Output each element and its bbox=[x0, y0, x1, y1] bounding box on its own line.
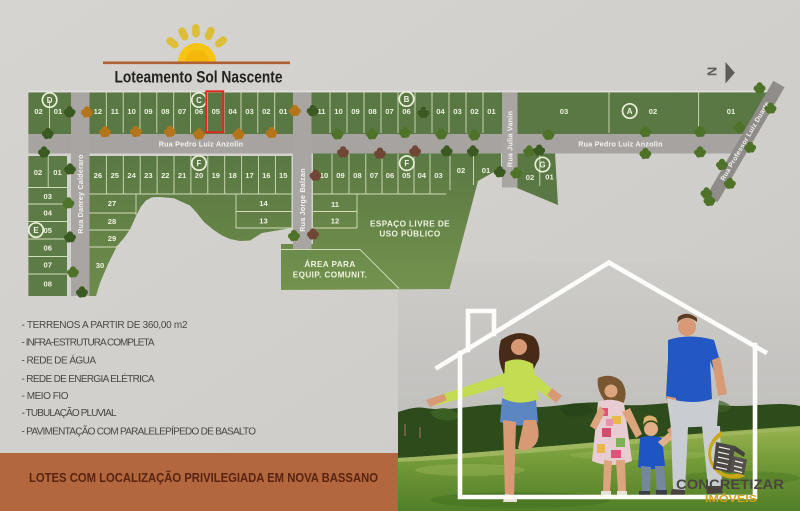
svg-text:08: 08 bbox=[368, 107, 376, 116]
svg-text:LOTES COM LOCALIZAÇÃO PRIVILEG: LOTES COM LOCALIZAÇÃO PRIVILEGIADA EM NO… bbox=[29, 470, 378, 485]
svg-text:26: 26 bbox=[94, 171, 102, 180]
svg-text:- REDE DE ENERGIA ELÉTRICA: - REDE DE ENERGIA ELÉTRICA bbox=[22, 372, 155, 385]
svg-text:12: 12 bbox=[331, 216, 339, 225]
svg-text:02: 02 bbox=[457, 166, 465, 175]
svg-text:02: 02 bbox=[34, 107, 42, 116]
svg-text:09: 09 bbox=[336, 171, 344, 180]
svg-text:05: 05 bbox=[43, 226, 52, 235]
svg-text:27: 27 bbox=[108, 199, 116, 208]
svg-text:- REDE DE ÁGUA: - REDE DE ÁGUA bbox=[22, 353, 97, 366]
svg-text:01: 01 bbox=[727, 107, 736, 116]
svg-text:04: 04 bbox=[228, 107, 237, 116]
svg-text:01: 01 bbox=[482, 166, 491, 175]
svg-text:08: 08 bbox=[161, 107, 169, 116]
svg-text:03: 03 bbox=[453, 107, 461, 116]
svg-text:03: 03 bbox=[560, 107, 568, 116]
svg-text:29: 29 bbox=[108, 234, 116, 243]
svg-text:16: 16 bbox=[262, 171, 270, 180]
svg-text:02: 02 bbox=[526, 173, 534, 182]
svg-text:Rua Julia Vanin: Rua Julia Vanin bbox=[505, 111, 514, 167]
svg-text:06: 06 bbox=[43, 243, 51, 252]
svg-text:03: 03 bbox=[434, 171, 442, 180]
svg-text:Loteamento Sol Nascente: Loteamento Sol Nascente bbox=[115, 69, 283, 87]
svg-text:02: 02 bbox=[34, 168, 42, 177]
svg-text:CONCRETIZAR: CONCRETIZAR bbox=[676, 477, 784, 492]
svg-text:- INFRA-ESTRUTURA COMPLETA: - INFRA-ESTRUTURA COMPLETA bbox=[22, 337, 155, 348]
svg-text:ÁREA PARA: ÁREA PARA bbox=[304, 259, 355, 269]
svg-text:- TERRENOS A PARTIR DE 360,00: - TERRENOS A PARTIR DE 360,00 m2 bbox=[22, 320, 188, 331]
svg-text:08: 08 bbox=[353, 171, 361, 180]
svg-text:14: 14 bbox=[259, 199, 268, 208]
svg-text:30: 30 bbox=[96, 261, 104, 270]
svg-text:01: 01 bbox=[487, 107, 496, 116]
svg-text:Rua Danrey Calderaro: Rua Danrey Calderaro bbox=[76, 154, 85, 234]
svg-text:17: 17 bbox=[245, 171, 253, 180]
svg-text:C: C bbox=[196, 96, 202, 105]
svg-text:01: 01 bbox=[279, 107, 288, 116]
svg-text:06: 06 bbox=[195, 107, 203, 116]
svg-text:EQUIP. COMUNIT.: EQUIP. COMUNIT. bbox=[293, 271, 368, 280]
svg-text:Rua Pedro Luiz Anzolin: Rua Pedro Luiz Anzolin bbox=[159, 139, 243, 148]
svg-text:01: 01 bbox=[53, 168, 62, 177]
svg-text:08: 08 bbox=[43, 280, 51, 289]
svg-text:G: G bbox=[539, 160, 545, 169]
svg-text:22: 22 bbox=[161, 171, 169, 180]
svg-text:12: 12 bbox=[94, 107, 102, 116]
svg-text:01: 01 bbox=[545, 173, 554, 182]
svg-text:19: 19 bbox=[212, 171, 220, 180]
svg-text:05: 05 bbox=[212, 107, 221, 116]
svg-text:18: 18 bbox=[228, 171, 236, 180]
svg-text:E: E bbox=[33, 226, 39, 235]
svg-text:03: 03 bbox=[245, 107, 253, 116]
svg-text:09: 09 bbox=[351, 107, 359, 116]
svg-text:Rua Pedro Luiz Anzolin: Rua Pedro Luiz Anzolin bbox=[578, 139, 662, 148]
svg-text:07: 07 bbox=[43, 261, 51, 270]
svg-text:02: 02 bbox=[470, 107, 478, 116]
svg-text:- TUBULAÇÃO PLUVIAL: - TUBULAÇÃO PLUVIAL bbox=[22, 406, 117, 419]
svg-text:11: 11 bbox=[317, 107, 326, 116]
svg-text:06: 06 bbox=[386, 171, 394, 180]
svg-text:- MEIO FIO: - MEIO FIO bbox=[22, 391, 69, 402]
svg-text:07: 07 bbox=[178, 107, 186, 116]
svg-text:20: 20 bbox=[195, 171, 203, 180]
svg-text:07: 07 bbox=[385, 107, 393, 116]
svg-text:28: 28 bbox=[108, 217, 116, 226]
svg-text:A: A bbox=[627, 107, 633, 116]
svg-text:04: 04 bbox=[418, 171, 427, 180]
svg-text:B: B bbox=[404, 95, 410, 104]
svg-text:24: 24 bbox=[127, 171, 136, 180]
svg-text:- PAVIMENTAÇÃO COM PARALELEPÍP: - PAVIMENTAÇÃO COM PARALELEPÍPEDO DE BAS… bbox=[22, 424, 257, 437]
svg-text:Rua Jorge Balzan: Rua Jorge Balzan bbox=[298, 168, 307, 232]
svg-text:F: F bbox=[197, 159, 202, 168]
svg-text:11: 11 bbox=[331, 200, 340, 209]
svg-text:02: 02 bbox=[649, 107, 657, 116]
svg-text:06: 06 bbox=[402, 107, 410, 116]
svg-text:01: 01 bbox=[54, 107, 63, 116]
svg-text:13: 13 bbox=[259, 216, 267, 225]
svg-text:04: 04 bbox=[43, 208, 52, 217]
svg-text:09: 09 bbox=[144, 107, 152, 116]
svg-text:11: 11 bbox=[111, 107, 120, 116]
svg-text:USO PÚBLICO: USO PÚBLICO bbox=[379, 228, 440, 239]
svg-text:10: 10 bbox=[334, 107, 342, 116]
svg-text:04: 04 bbox=[436, 107, 445, 116]
svg-text:10: 10 bbox=[127, 107, 135, 116]
svg-text:23: 23 bbox=[144, 171, 152, 180]
svg-text:D: D bbox=[47, 96, 53, 105]
svg-text:15: 15 bbox=[279, 171, 288, 180]
svg-text:F: F bbox=[404, 159, 409, 168]
svg-text:07: 07 bbox=[370, 171, 378, 180]
svg-text:03: 03 bbox=[43, 192, 51, 201]
svg-text:05: 05 bbox=[402, 171, 411, 180]
svg-text:02: 02 bbox=[262, 107, 270, 116]
svg-text:21: 21 bbox=[178, 171, 187, 180]
svg-text:N: N bbox=[705, 67, 720, 76]
svg-text:25: 25 bbox=[111, 171, 120, 180]
svg-text:ESPAÇO LIVRE DE: ESPAÇO LIVRE DE bbox=[370, 220, 450, 229]
svg-text:IMÓVEIS: IMÓVEIS bbox=[705, 492, 757, 505]
